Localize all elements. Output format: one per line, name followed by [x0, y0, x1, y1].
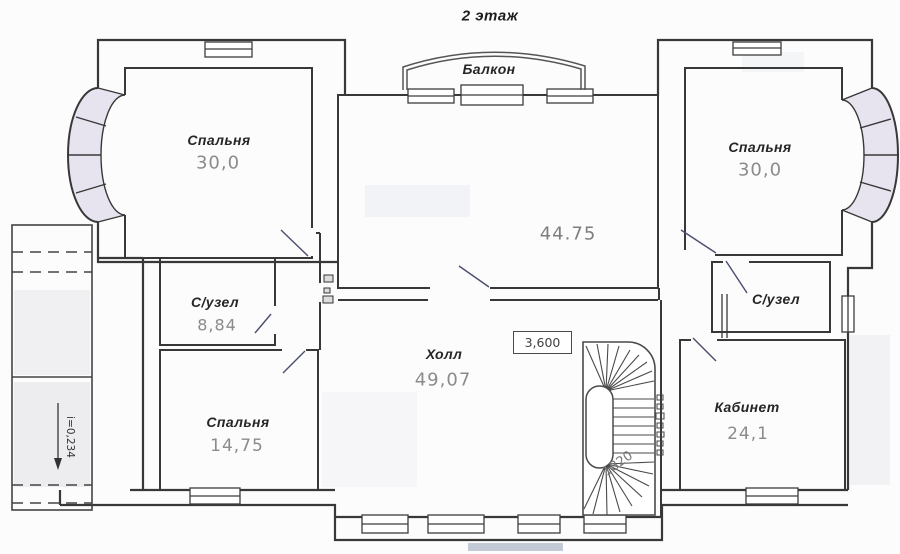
door-bathroom-left	[255, 314, 271, 333]
bay-window-right	[842, 88, 898, 222]
bathroom-left-area: 8,84	[197, 316, 237, 335]
door-hardware	[323, 275, 333, 303]
elevation-mark: 3,600	[513, 331, 572, 354]
door-bedroom-right	[681, 230, 716, 253]
hall-area: 49,07	[415, 370, 472, 391]
slope-annotation: i=0,234	[64, 416, 76, 458]
bedroom-right-area: 30,0	[738, 160, 782, 181]
living-room-area: 44.75	[540, 224, 597, 245]
bedroom-left-area: 30,0	[196, 153, 240, 174]
bedroom-small-label: Спальня	[206, 414, 269, 430]
balcony-label: Балкон	[462, 61, 515, 77]
bedroom-left-label: Спальня	[187, 132, 250, 148]
bathroom-right-label: С/узел	[752, 291, 800, 307]
hall-label: Холл	[426, 346, 462, 362]
plan-title: 2 этаж	[462, 8, 519, 25]
floor-plan-page: 2 этаж Балкон Спальня 30,0 44.75 Спальня…	[0, 0, 900, 554]
wall-openings	[270, 228, 749, 355]
bedroom-right-label: Спальня	[728, 139, 791, 155]
bathroom-left-label: С/узел	[191, 294, 239, 310]
study-area: 24,1	[727, 424, 769, 444]
floor-plan-drawing	[0, 0, 900, 554]
door-bedroom-left	[281, 230, 308, 256]
stair-eye	[586, 386, 613, 468]
study-label: Кабинет	[714, 399, 779, 415]
bay-window-left	[68, 88, 125, 222]
bedroom-small-area: 14,75	[210, 436, 264, 456]
staircase	[583, 342, 664, 515]
